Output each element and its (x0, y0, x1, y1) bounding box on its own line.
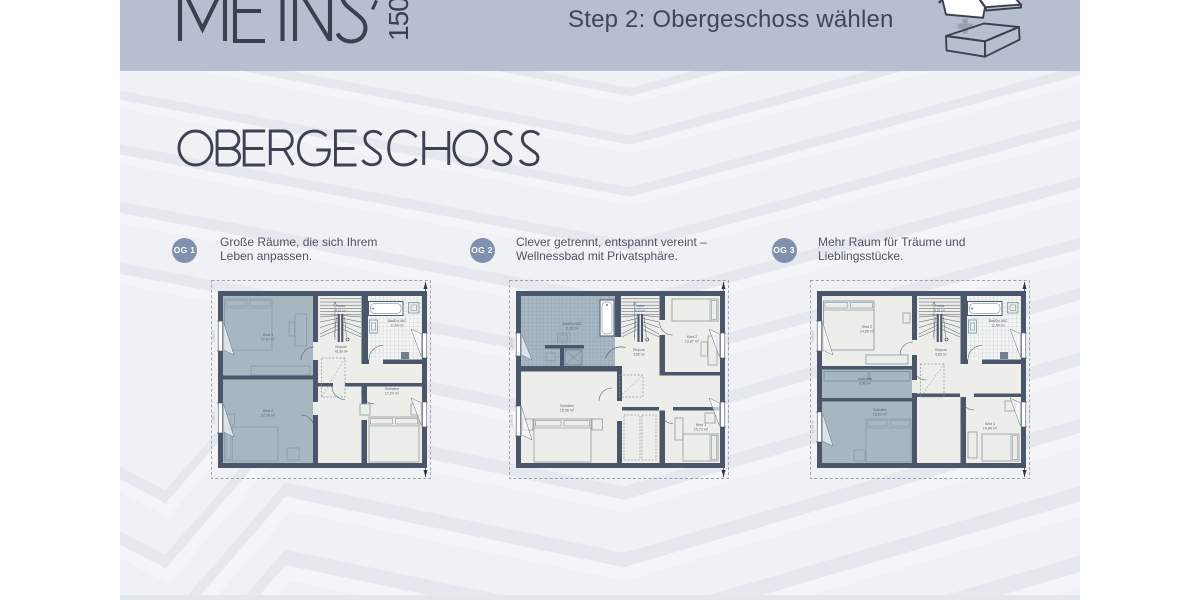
svg-text:15,72 m²: 15,72 m² (694, 427, 709, 431)
svg-text:Kind 2: Kind 2 (263, 409, 273, 413)
svg-text:Schlafen: Schlafen (560, 404, 574, 408)
svg-text:1,135/1,10: 1,135/1,10 (1028, 339, 1030, 352)
svg-text:11,54 m²: 11,54 m² (991, 323, 1005, 327)
svg-text:13,87 m²: 13,87 m² (685, 339, 700, 343)
svg-text:Kind 1: Kind 1 (985, 422, 995, 426)
svg-text:6,96 m²: 6,96 m² (859, 381, 871, 385)
svg-text:Kind 2: Kind 2 (862, 325, 872, 329)
svg-text:1,135/1,10: 1,135/1,10 (727, 408, 729, 421)
svg-text:1,135/1,10: 1,135/1,10 (727, 339, 729, 352)
svg-text:4,53 m²: 4,53 m² (934, 308, 945, 312)
svg-text:1,135/1,10: 1,135/1,10 (510, 338, 514, 351)
svg-text:4,53 m²: 4,53 m² (635, 308, 646, 312)
svg-text:19,08 m²: 19,08 m² (560, 408, 575, 412)
svg-text:Ankleiden: Ankleiden (858, 377, 873, 381)
svg-text:Treppe: Treppe (635, 304, 645, 308)
svg-text:4,53 m²: 4,53 m² (335, 308, 346, 312)
svg-text:14,84 m²: 14,84 m² (983, 426, 998, 430)
svg-text:Bad/Du./WC: Bad/Du./WC (563, 322, 582, 326)
svg-text:Empore: Empore (335, 345, 347, 349)
svg-text:+6,36 m²: +6,36 m² (334, 349, 348, 353)
svg-text:150: 150 (383, 0, 414, 41)
svg-text:16,62 m²: 16,62 m² (873, 412, 888, 416)
svg-text:Bad/Du./WC: Bad/Du./WC (989, 319, 1008, 323)
svg-text:1,135/1,10: 1,135/1,10 (212, 329, 216, 342)
svg-text:3,80 m²: 3,80 m² (633, 352, 645, 356)
svg-text:1,135/1,10: 1,135/1,10 (212, 411, 216, 424)
svg-text:Empore: Empore (633, 348, 645, 352)
svg-text:1,135/1,10: 1,135/1,10 (429, 339, 431, 352)
svg-text:17,67 m²: 17,67 m² (261, 337, 276, 341)
svg-text:5,83 m²: 5,83 m² (935, 352, 947, 356)
svg-text:Treppe: Treppe (935, 304, 945, 308)
svg-text:Treppe: Treppe (336, 304, 346, 308)
svg-text:Kind 1: Kind 1 (263, 333, 273, 337)
svg-text:Kind 1: Kind 1 (696, 423, 706, 427)
svg-text:17,78 m²: 17,78 m² (261, 413, 276, 417)
svg-text:1,135/1,10: 1,135/1,10 (811, 329, 815, 342)
svg-text:1,135/1,10: 1,135/1,10 (429, 408, 431, 421)
svg-text:1,135/1,10: 1,135/1,10 (811, 420, 815, 433)
svg-text:Empore: Empore (935, 348, 947, 352)
svg-text:Schlafen: Schlafen (385, 387, 399, 391)
svg-text:Kind 2: Kind 2 (687, 335, 697, 339)
svg-text:Schlafen: Schlafen (873, 408, 887, 412)
svg-text:11,54 m²: 11,54 m² (390, 323, 404, 327)
svg-text:Bad/Du./WC: Bad/Du./WC (388, 319, 407, 323)
svg-text:14,65 m²: 14,65 m² (860, 329, 875, 333)
svg-text:11,92 m²: 11,92 m² (565, 326, 579, 330)
svg-text:17,20 m²: 17,20 m² (385, 391, 400, 395)
svg-text:1,135/1,10: 1,135/1,10 (1028, 408, 1030, 421)
svg-text:1,135/1,10: 1,135/1,10 (510, 414, 514, 427)
